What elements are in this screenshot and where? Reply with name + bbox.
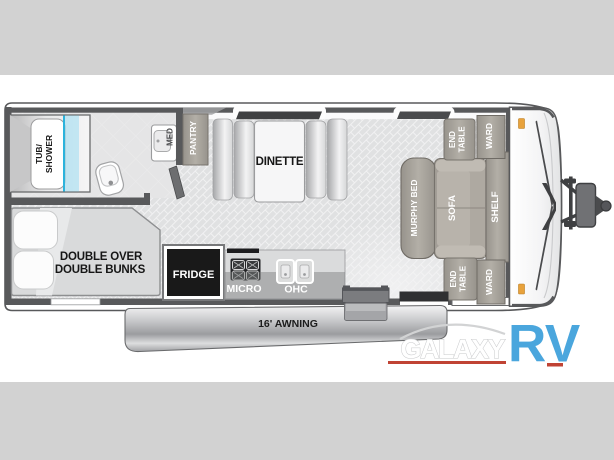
svg-text:RV: RV — [508, 315, 580, 374]
svg-text:MURPHY BED: MURPHY BED — [409, 180, 419, 237]
svg-text:END: END — [448, 131, 457, 148]
svg-text:16' AWNING: 16' AWNING — [258, 318, 318, 330]
svg-text:WARD: WARD — [484, 123, 494, 149]
svg-text:FRIDGE: FRIDGE — [173, 269, 215, 281]
svg-text:SOFA: SOFA — [447, 195, 458, 221]
svg-text:DINETTE: DINETTE — [256, 156, 304, 168]
svg-text:SHELF: SHELF — [490, 191, 501, 222]
svg-text:MICRO: MICRO — [227, 283, 262, 295]
svg-text:TABLE: TABLE — [459, 265, 468, 292]
svg-text:TUB/: TUB/ — [34, 143, 44, 163]
svg-text:GALAXY: GALAXY — [401, 334, 506, 364]
svg-text:DOUBLE OVER: DOUBLE OVER — [60, 251, 143, 263]
svg-text:MED: MED — [166, 128, 175, 146]
svg-text:WARD: WARD — [484, 269, 494, 295]
svg-text:PANTRY: PANTRY — [188, 121, 198, 155]
svg-text:SHOWER: SHOWER — [44, 135, 54, 173]
svg-text:OHC: OHC — [284, 284, 308, 296]
svg-text:TABLE: TABLE — [458, 126, 467, 153]
svg-text:END: END — [449, 270, 458, 287]
svg-text:DOUBLE BUNKS: DOUBLE BUNKS — [55, 264, 146, 276]
